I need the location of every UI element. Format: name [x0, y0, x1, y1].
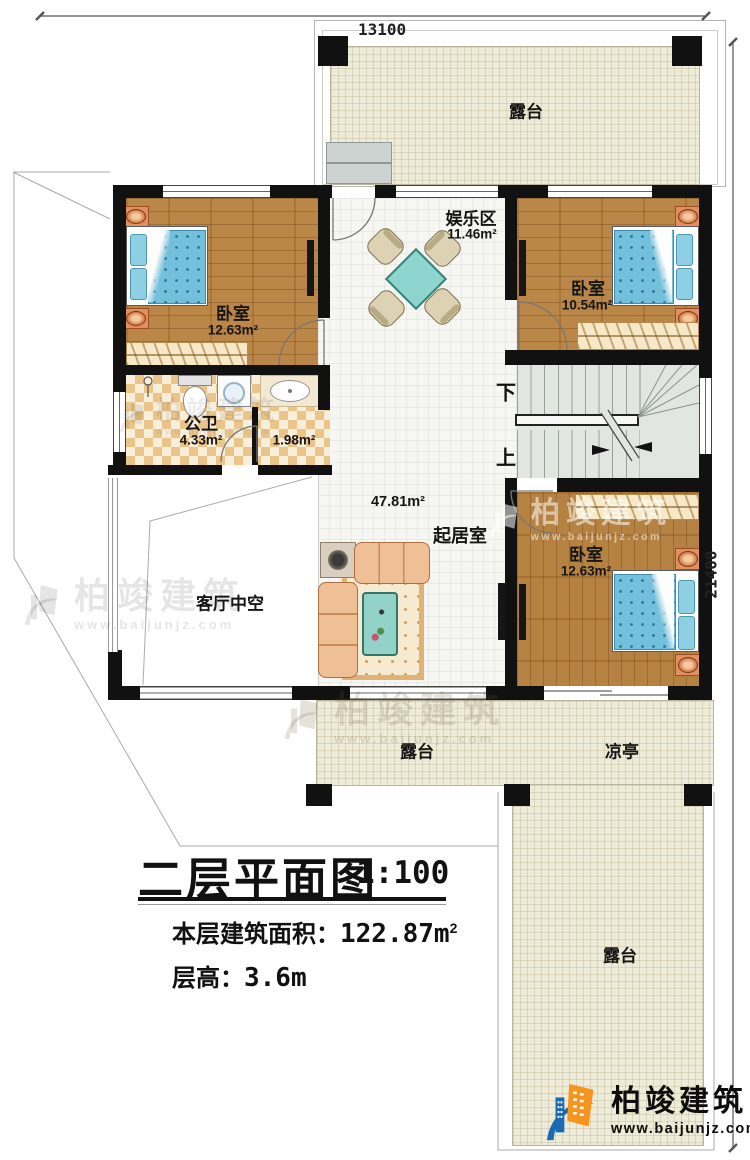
stairs-down-label: 下	[496, 377, 516, 406]
wall	[318, 198, 330, 318]
nightstand	[675, 654, 701, 676]
sliding-door	[544, 686, 668, 700]
wall	[270, 185, 332, 198]
bed-sheet	[650, 230, 672, 302]
tv	[519, 240, 526, 296]
pillow	[130, 268, 147, 300]
room-label-terrace-right: 露台	[603, 942, 637, 967]
window	[548, 185, 652, 198]
wall	[108, 650, 122, 686]
terrace-bench	[326, 142, 392, 184]
title-underline	[138, 897, 446, 901]
tv	[307, 240, 314, 296]
room-area-bathroom: 4.33m²	[180, 433, 223, 448]
window	[113, 392, 126, 452]
pillow	[678, 616, 695, 650]
room-label-void: 客厅中空	[196, 590, 264, 615]
column	[504, 784, 530, 806]
room-label-pavilion: 凉亭	[605, 738, 639, 763]
room-label-bedroom-bottom-right: 卧室	[569, 541, 603, 566]
pillow	[676, 268, 693, 300]
room-area-bedroom-bottom-right: 12.63m²	[561, 564, 611, 579]
brand-url: www.baijunjz.com	[611, 1121, 750, 1137]
sofa	[318, 582, 358, 678]
brand-logo: 柏竣建筑 www.baijunjz.com	[543, 1076, 750, 1148]
title-underline-thin	[138, 904, 446, 905]
wall	[258, 465, 332, 475]
stair-rail	[515, 414, 639, 426]
room-label-bedroom-top-right: 卧室	[571, 275, 605, 300]
window	[163, 185, 270, 198]
stairs-up-label: 上	[496, 442, 516, 471]
terrace-bottom-floor	[316, 700, 714, 786]
stair-treads-lower	[517, 430, 640, 478]
brand-name: 柏竣建筑	[611, 1087, 750, 1117]
floor-height-spec: 层高：3.6m	[172, 958, 307, 993]
brand-logo-icon	[22, 579, 66, 631]
floor-height-value: 3.6m	[244, 963, 307, 993]
wall	[375, 185, 396, 198]
wall	[113, 185, 163, 198]
coffee-table	[362, 592, 398, 656]
void-area	[126, 475, 319, 686]
floor-plan: 柏竣建筑 www.baijunjz.com 柏竣建筑 www.baijunjz.…	[0, 0, 750, 1160]
wall	[113, 365, 330, 375]
floor-area-label: 本层建筑面积：	[172, 921, 340, 948]
window	[140, 686, 292, 700]
room-area-bedroom-top-right: 10.54m²	[562, 298, 612, 313]
wall	[113, 198, 126, 392]
bed-sheet	[148, 230, 170, 302]
window	[699, 378, 712, 454]
wall	[505, 350, 712, 365]
room-label-terrace-bottom: 露台	[400, 738, 434, 763]
closet	[577, 322, 699, 350]
closet	[575, 494, 699, 520]
wall	[108, 686, 140, 700]
floor-area-value: 122.87m	[340, 919, 450, 949]
washing-machine	[217, 375, 251, 407]
bed-sheet	[652, 574, 674, 648]
toilet-tank	[178, 375, 212, 386]
floor-area-exponent: 2	[450, 920, 458, 936]
room-label-living: 起居室	[433, 522, 487, 548]
room-label-bathroom: 公卫	[184, 410, 218, 435]
column	[318, 36, 348, 66]
floor-area-spec: 本层建筑面积：122.87m2	[172, 914, 457, 949]
room-label-bedroom-left: 卧室	[216, 300, 250, 325]
floor-height-label: 层高：	[172, 965, 244, 992]
wall	[108, 465, 222, 475]
wall	[652, 185, 712, 198]
wall	[292, 686, 350, 700]
column	[306, 784, 332, 806]
nightstand	[675, 548, 701, 570]
pillow	[130, 234, 147, 266]
sofa	[354, 542, 430, 584]
nightstand	[675, 206, 701, 227]
window	[396, 185, 498, 198]
wall	[252, 407, 258, 465]
room-label-terrace-top: 露台	[509, 98, 543, 123]
pillow	[678, 580, 695, 614]
dimension-top: 13100	[358, 20, 406, 39]
wall	[498, 185, 548, 198]
wall	[505, 198, 517, 300]
window	[350, 686, 486, 700]
room-area-laundry: 1.98m²	[273, 433, 316, 448]
tv	[519, 584, 526, 640]
room-area-bedroom-left: 12.63m²	[208, 323, 258, 338]
nightstand	[123, 308, 149, 329]
room-area-entertainment: 11.46m²	[447, 227, 497, 242]
wall	[505, 478, 517, 700]
sink	[270, 380, 310, 402]
dimension-right: 21400	[702, 547, 721, 603]
room-area-living: 47.81m²	[371, 494, 425, 510]
pillow	[676, 234, 693, 266]
plan-scale: 1:100	[356, 855, 449, 891]
nightstand	[123, 206, 149, 227]
window	[108, 478, 118, 652]
brand-logo-icon	[543, 1076, 605, 1148]
column	[672, 36, 702, 66]
wall	[557, 478, 712, 492]
stair-treads-upper	[517, 365, 640, 414]
corner-table	[320, 542, 356, 578]
wall	[668, 686, 712, 700]
column	[684, 784, 712, 806]
